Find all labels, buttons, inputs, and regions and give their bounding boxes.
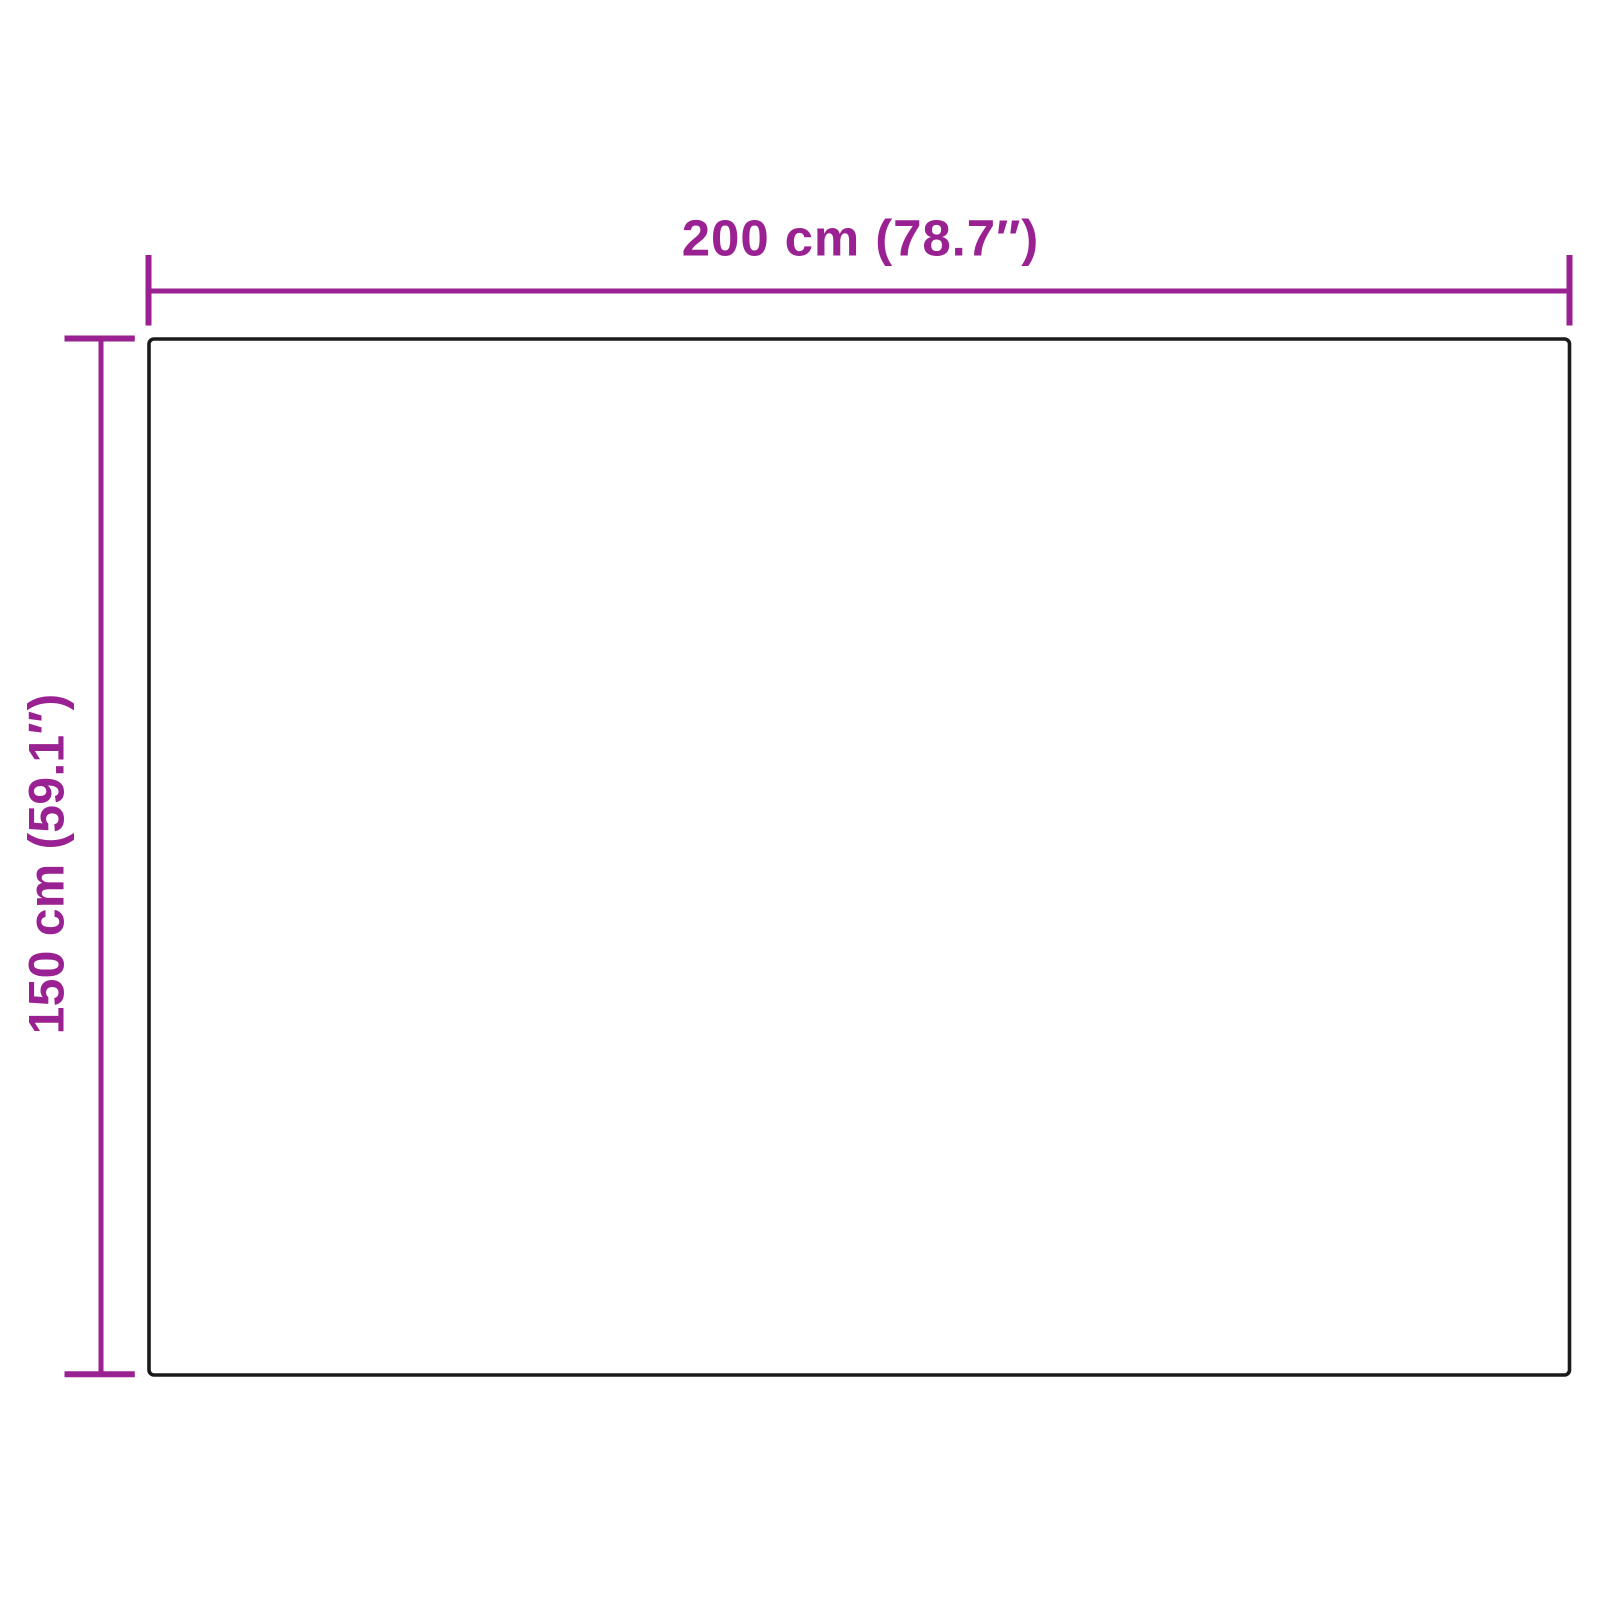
- svg-text:200 cm (78.7″): 200 cm (78.7″): [682, 210, 1039, 267]
- svg-text:150 cm (59.1″): 150 cm (59.1″): [19, 694, 75, 1035]
